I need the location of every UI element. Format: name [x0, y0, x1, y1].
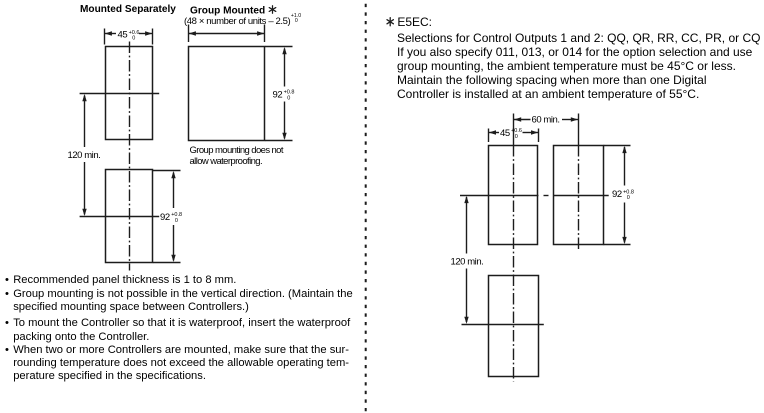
svg-text:0: 0	[627, 195, 630, 201]
svg-text:45: 45	[500, 128, 510, 139]
svg-text:92: 92	[273, 90, 283, 101]
svg-text:92: 92	[612, 189, 622, 200]
svg-text:0: 0	[132, 36, 135, 42]
svg-text:45: 45	[118, 30, 128, 41]
svg-text:0: 0	[515, 134, 518, 140]
svg-text:60 min.: 60 min.	[532, 115, 560, 126]
svg-text:120 min.: 120 min.	[451, 257, 484, 268]
svg-text:92: 92	[160, 212, 170, 223]
svg-text:0: 0	[175, 218, 178, 224]
svg-text:120 min.: 120 min.	[68, 150, 101, 161]
svg-text:0: 0	[287, 95, 290, 101]
